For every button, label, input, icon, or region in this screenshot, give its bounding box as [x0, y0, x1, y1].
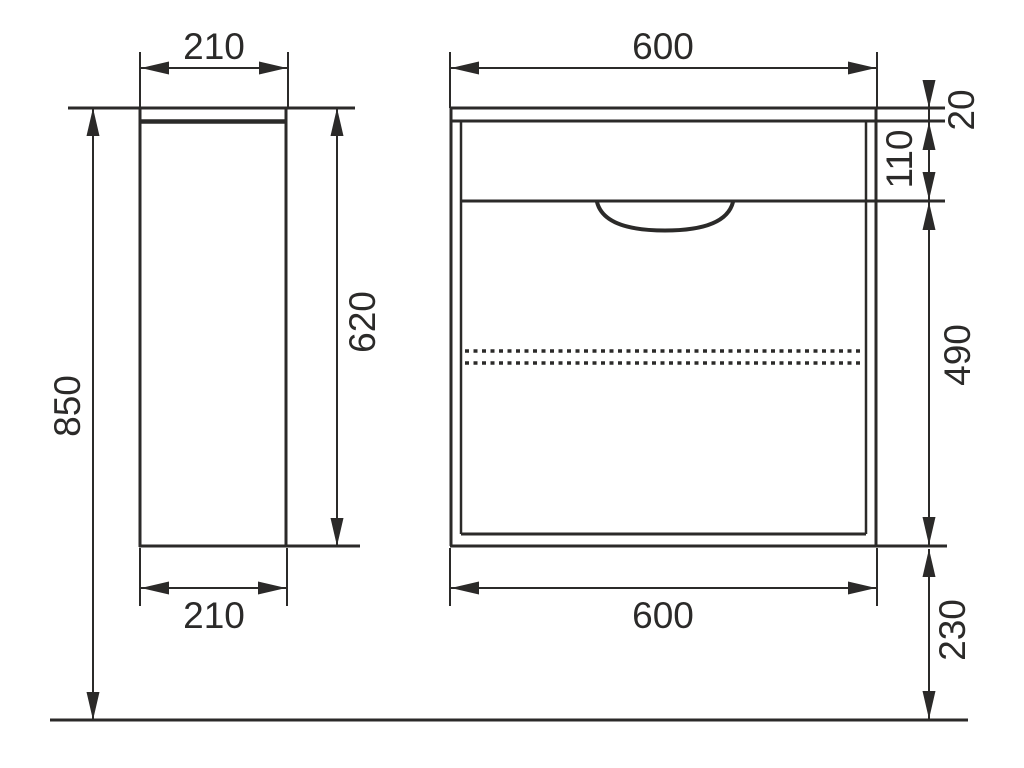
dim-label-top-panel-thickness: 20	[941, 89, 982, 130]
drawing-canvas: 210 600 210 600 850 620 20 110 490 230	[0, 0, 1024, 768]
dim-label-front-width-bottom: 600	[632, 595, 694, 636]
dim-label-side-width-bottom: 210	[183, 595, 245, 636]
dim-label-drawer-front-height: 110	[879, 130, 920, 189]
dim-label-lower-section-height: 490	[937, 324, 978, 386]
extension-lines	[140, 52, 877, 606]
dim-label-floor-clearance: 230	[932, 599, 973, 661]
dim-label-total-height: 850	[47, 375, 88, 437]
drawer-handle-recess	[597, 202, 733, 231]
dim-label-side-width-top: 210	[183, 26, 245, 67]
front-view	[450, 108, 947, 546]
dim-label-cabinet-height: 620	[342, 291, 383, 353]
side-view	[68, 108, 360, 547]
dimension-drawing: 210 600 210 600 850 620 20 110 490 230	[0, 0, 1024, 768]
dim-label-front-width-top: 600	[632, 26, 694, 67]
